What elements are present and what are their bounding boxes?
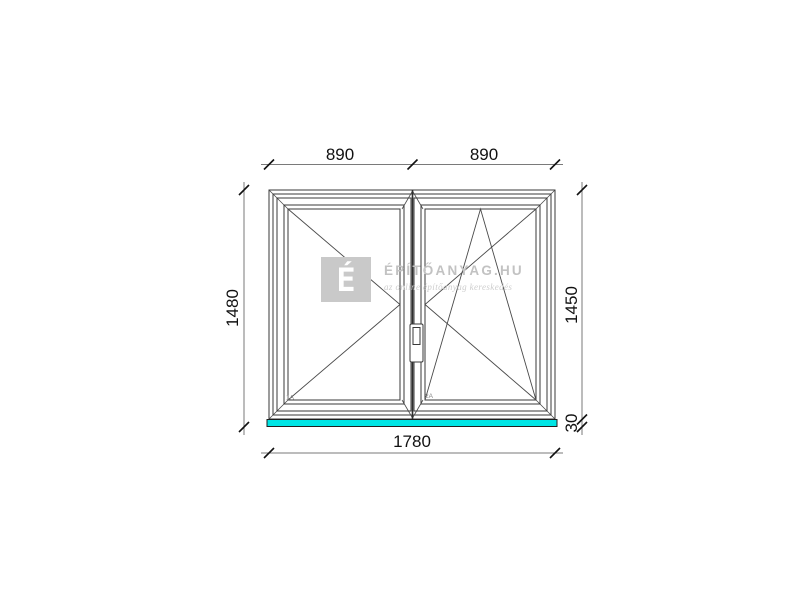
dimension-bottom: 1780	[261, 432, 563, 458]
dimension-top: 890 890	[261, 145, 563, 170]
dimension-right: 1450 30	[562, 182, 587, 435]
handle-grip	[413, 328, 420, 345]
dim-sill-height: 30	[562, 414, 581, 433]
dimension-left: 1480	[223, 182, 249, 435]
left-sash: 1A	[277, 198, 411, 411]
dim-right-frame-height: 1450	[562, 286, 581, 324]
right-sash-tilt-indicator	[425, 209, 536, 400]
dim-total-width: 1780	[393, 432, 431, 451]
watermark-logo-icon: É	[336, 261, 355, 299]
watermark-title: ÉPÍTŐANYAG.HU	[384, 263, 524, 278]
watermark-subtitle: az online építőanyag kereskedés	[384, 282, 512, 292]
right-sash-glass	[425, 209, 536, 400]
window-sill	[267, 420, 557, 427]
drawing-canvas: 1A 2A 890 890	[0, 0, 800, 600]
left-sash-mid	[284, 205, 404, 404]
right-sash-outer	[414, 198, 547, 411]
right-sash-mid	[421, 205, 540, 404]
left-sash-turn-indicator	[288, 209, 400, 400]
dim-top-right-width: 890	[470, 145, 498, 164]
dim-top-left-width: 890	[326, 145, 354, 164]
dim-left-total-height: 1480	[223, 289, 242, 327]
right-pane-label: 2A	[425, 393, 434, 400]
right-sash: 2A	[414, 198, 547, 411]
window-technical-drawing: 1A 2A 890 890	[0, 0, 800, 600]
right-sash-turn-indicator	[425, 209, 536, 400]
window-handle	[410, 324, 423, 362]
window-frame	[269, 190, 555, 419]
left-sash-outer	[277, 198, 411, 411]
left-pane-label: 1A	[286, 395, 295, 402]
left-sash-glass	[288, 209, 400, 400]
watermark: É ÉPÍTŐANYAG.HU az online építőanyag ker…	[321, 257, 524, 302]
